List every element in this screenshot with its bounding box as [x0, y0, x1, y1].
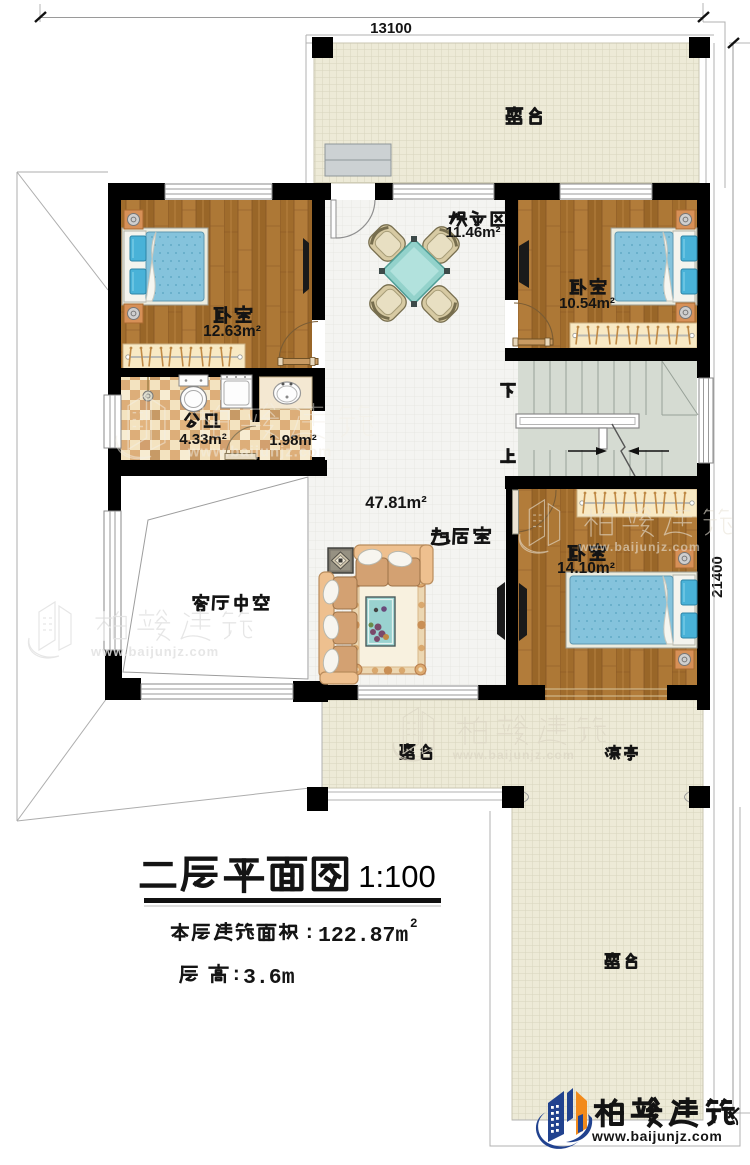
svg-text:1:100: 1:100: [358, 859, 436, 894]
svg-text:www.baijunjz.com: www.baijunjz.com: [578, 540, 701, 554]
svg-text:www.baijunjz.com: www.baijunjz.com: [591, 1128, 722, 1144]
svg-text:12.63m²: 12.63m²: [203, 323, 261, 340]
svg-text::: :: [233, 963, 240, 985]
svg-text:www.baijunjz.com: www.baijunjz.com: [90, 644, 219, 659]
svg-text:2: 2: [410, 917, 418, 931]
svg-text:10.54m²: 10.54m²: [559, 295, 615, 312]
svg-text:14.10m²: 14.10m²: [557, 560, 615, 577]
svg-text:11.46m²: 11.46m²: [445, 224, 500, 241]
svg-text:13100: 13100: [370, 20, 412, 37]
svg-text:47.81m²: 47.81m²: [365, 494, 427, 512]
svg-text:122.87m: 122.87m: [318, 924, 408, 948]
svg-text:3.6m: 3.6m: [243, 966, 295, 990]
svg-text:www.baijunjz.com: www.baijunjz.com: [452, 748, 575, 762]
svg-text:21400: 21400: [709, 556, 726, 598]
svg-text::: :: [306, 921, 313, 943]
svg-text:www.baijunjz.com: www.baijunjz.com: [187, 444, 333, 460]
